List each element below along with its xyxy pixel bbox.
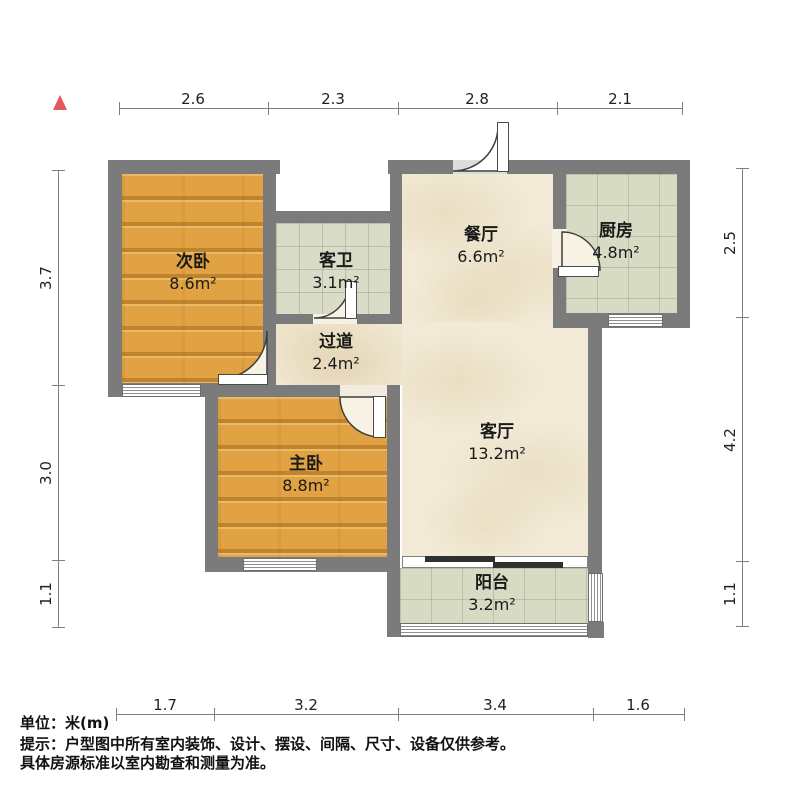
dimension-tick	[736, 317, 749, 318]
room-label-dining-room: 餐厅 6.6m²	[421, 224, 541, 268]
room-label-hallway: 过道 2.4m²	[276, 331, 396, 375]
dimension-tick	[398, 102, 399, 115]
dimension-tick	[682, 102, 683, 115]
dimension-label-right: 4.2	[721, 418, 739, 462]
room-area: 13.2m²	[437, 443, 557, 465]
secondary-bedroom-door-leaf	[218, 374, 268, 385]
room-name: 客卫	[276, 250, 396, 272]
dimension-tick	[557, 102, 558, 115]
room-name: 过道	[276, 331, 396, 353]
room-label-kitchen: 厨房 4.8m²	[556, 220, 676, 264]
wall	[263, 160, 276, 385]
dimension-tick	[268, 102, 269, 115]
kitchen-door-leaf	[558, 266, 599, 277]
room-label-living-room: 客厅 13.2m²	[437, 421, 557, 465]
room-label-guest-bathroom: 客卫 3.1m²	[276, 250, 396, 294]
dimension-tick	[116, 708, 117, 721]
dimension-label-bottom: 1.6	[608, 696, 668, 714]
wall	[108, 160, 280, 174]
wall	[390, 160, 402, 324]
dimension-tick	[736, 626, 749, 627]
dimension-label-top: 2.3	[303, 90, 363, 108]
north-arrow-icon	[53, 95, 67, 110]
dimension-tick	[214, 708, 215, 721]
dimension-line-left	[58, 170, 59, 627]
dimension-label-right: 1.1	[721, 572, 739, 616]
dimension-label-top: 2.6	[163, 90, 223, 108]
dimension-line-bottom	[116, 714, 684, 715]
room-area: 4.8m²	[556, 242, 676, 264]
balcony-sliding-door-panel	[425, 556, 495, 562]
dimension-label-bottom: 3.2	[276, 696, 336, 714]
floorplan-canvas: 次卧 8.6m² 客卫 3.1m² 餐厅 6.6m² 厨房 4.8m² 过道 2…	[0, 0, 800, 798]
dimension-label-right: 2.5	[721, 221, 739, 265]
dimension-tick	[52, 560, 65, 561]
dimension-label-top: 2.1	[590, 90, 650, 108]
dimension-label-bottom: 1.7	[135, 696, 195, 714]
footer-tip-line2: 具体房源标准以室内勘查和测量为准。	[20, 752, 275, 773]
room-area: 3.2m²	[432, 594, 552, 616]
room-name: 次卧	[133, 251, 253, 273]
footer-unit-line: 单位：米(m)	[20, 712, 109, 733]
dimension-tick	[119, 102, 120, 115]
dimension-tick	[736, 168, 749, 169]
dimension-label-top: 2.8	[447, 90, 507, 108]
master-bedroom-door-leaf	[373, 396, 386, 438]
dimension-tick	[52, 170, 65, 171]
footer-tip-line1: 提示：户型图中所有室内装饰、设计、摆设、间隔、尺寸、设备仅供参考。	[20, 733, 515, 754]
window-kitchen	[608, 314, 663, 327]
dimension-tick	[52, 627, 65, 628]
dimension-label-left: 1.1	[37, 572, 55, 616]
room-label-secondary-bedroom: 次卧 8.6m²	[133, 251, 253, 295]
window-secondary-bedroom	[122, 384, 201, 397]
dimension-tick	[684, 708, 685, 721]
dimension-line-right	[742, 168, 743, 626]
window-master-bedroom	[243, 558, 317, 571]
room-area: 8.6m²	[133, 273, 253, 295]
room-name: 主卧	[246, 453, 366, 475]
dimension-label-left: 3.0	[37, 451, 55, 495]
room-name: 餐厅	[421, 224, 541, 246]
wall	[205, 385, 218, 572]
room-name: 厨房	[556, 220, 676, 242]
room-area: 3.1m²	[276, 272, 396, 294]
room-label-balcony: 阳台 3.2m²	[432, 572, 552, 616]
wall	[388, 160, 690, 174]
balcony-sliding-door-panel	[493, 562, 563, 568]
door-arc-layer	[0, 0, 800, 798]
room-label-master-bedroom: 主卧 8.8m²	[246, 453, 366, 497]
dimension-tick	[736, 561, 749, 562]
wall	[263, 211, 402, 223]
wall	[108, 160, 122, 397]
dimension-label-left: 3.7	[37, 256, 55, 300]
wall	[387, 385, 400, 637]
window-balcony-right	[588, 573, 603, 622]
entrance-door-leaf	[497, 122, 509, 172]
dimension-tick	[398, 708, 399, 721]
room-area: 8.8m²	[246, 475, 366, 497]
wall	[677, 160, 690, 328]
room-area: 6.6m²	[421, 246, 541, 268]
dimension-tick	[593, 708, 594, 721]
dimension-label-bottom: 3.4	[465, 696, 525, 714]
dimension-line-top	[119, 108, 682, 109]
dimension-tick	[52, 385, 65, 386]
room-name: 客厅	[437, 421, 557, 443]
room-name: 阳台	[432, 572, 552, 594]
window-balcony-bottom	[400, 623, 588, 637]
room-area: 2.4m²	[276, 353, 396, 375]
wall	[588, 622, 604, 638]
wall	[588, 322, 602, 573]
